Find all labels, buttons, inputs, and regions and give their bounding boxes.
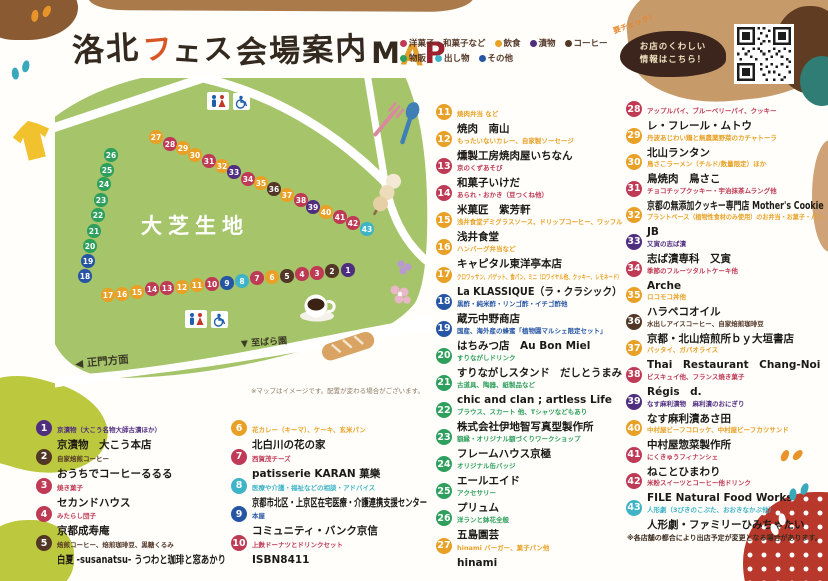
stall-description: hinami バーガー、菓子パン他 bbox=[457, 545, 549, 552]
stall-item-15: 15浅井食堂デミグラスソース、ドリップコーヒー、ワッフル浅井食堂 bbox=[436, 211, 622, 238]
map-marker-10: 10 bbox=[205, 277, 219, 291]
stall-description: あられ・おかき（豆つくね他） bbox=[457, 192, 548, 199]
stall-number-badge: 34 bbox=[626, 261, 642, 277]
qr-code-icon bbox=[734, 24, 794, 84]
festival-map-poster: 洛北 フェス 会場案内 MAP 洋菓子・和菓子など飲食漬物コーヒー物販出し物その… bbox=[0, 0, 828, 581]
map-marker-43: 43 bbox=[360, 222, 374, 236]
stall-description: 焙煎コーヒー、焙煎珈琲豆、黒糖くるみ bbox=[57, 542, 174, 549]
stall-description: プラントベース（植物性食材のみ使用）のお弁当・お菓子・パン bbox=[647, 214, 824, 221]
stall-number-badge: 13 bbox=[436, 158, 452, 174]
stall-number-badge: 17 bbox=[436, 267, 452, 283]
stall-description: 焼き菓子 bbox=[57, 485, 83, 492]
stall-item-11: 11焼肉弁当 など焼肉 南山 bbox=[436, 103, 622, 130]
stall-item-3: 3焼き菓子セカンドハウス bbox=[36, 477, 226, 506]
footprints-top-teal-icon bbox=[11, 59, 32, 82]
legend-label: 洋菓子・和菓子など bbox=[409, 37, 486, 49]
stall-list-col-3: 11焼肉弁当 など焼肉 南山12もったいないカレー、自家製ソーセージ燻製工房焼肉… bbox=[436, 103, 622, 564]
stall-description: 額縁・オリジナル額づくりワークショップ bbox=[457, 436, 581, 443]
promo-line-2: 情報はこちら！ bbox=[640, 54, 707, 67]
map-marker-22: 22 bbox=[91, 208, 105, 222]
map-marker-1: 1 bbox=[341, 263, 355, 277]
stall-number-badge: 3 bbox=[36, 478, 52, 494]
stall-number-badge: 25 bbox=[436, 483, 452, 499]
map-marker-7: 7 bbox=[250, 271, 264, 285]
stall-description: パッタイ、ガパオライス bbox=[647, 347, 718, 354]
stall-number-badge: 10 bbox=[231, 535, 247, 551]
stall-item-22: 22ブラウス、スカート 他、Tシャツなどもあり株式会社伊地智写真型製作所 bbox=[436, 401, 622, 428]
map-marker-31: 31 bbox=[202, 154, 216, 168]
stall-number-badge: 22 bbox=[436, 402, 452, 418]
map-marker-24: 24 bbox=[97, 177, 111, 191]
map-marker-15: 15 bbox=[130, 285, 144, 299]
stall-number-badge: 6 bbox=[231, 420, 247, 436]
legend-dot-icon bbox=[530, 40, 537, 47]
stall-description: すりながしドリンク bbox=[457, 355, 516, 362]
stall-number-badge: 32 bbox=[626, 207, 642, 223]
stall-description: 古道具、陶器、紙製品など bbox=[457, 382, 535, 389]
stall-item-10: 10上麩ドーナツとドリンクセットISBN8411 bbox=[231, 534, 427, 563]
title-jp-3: 会場案内 bbox=[235, 23, 368, 73]
stall-number-badge: 43 bbox=[626, 500, 642, 516]
stall-number-badge: 7 bbox=[231, 449, 247, 465]
map-marker-4: 4 bbox=[295, 267, 309, 281]
stall-number-badge: 30 bbox=[626, 154, 642, 170]
stall-item-2: 2自家焙煎コーヒーおうちでコーヒーるるる bbox=[36, 448, 226, 477]
map-marker-40: 40 bbox=[319, 205, 333, 219]
stall-item-35: 35ロコモコ丼他ハラペコオイル bbox=[626, 286, 824, 313]
map-marker-8: 8 bbox=[235, 274, 249, 288]
stall-number-badge: 18 bbox=[436, 294, 452, 310]
stall-item-29: 29丹波あじわい鶏と無農薬野菜のカチャトーラ北山ランタン bbox=[626, 127, 824, 154]
stall-item-6: 6花カレー（キーマ）、ケーキ、玄米パン北白川の花の家 bbox=[231, 419, 427, 448]
stall-item-27: 27hinami バーガー、菓子パン他hinami bbox=[436, 537, 622, 564]
legend-label: コーヒー bbox=[574, 37, 608, 49]
stall-list-col-1: 1京漬物（大こう名物大師古漬ほか）京漬物 大こう本店2自家焙煎コーヒーおうちでコ… bbox=[36, 419, 226, 563]
stall-item-38: 38ビスキュイ他、フランス焼き菓子Régis d. bbox=[626, 366, 824, 393]
stall-number-badge: 14 bbox=[436, 185, 452, 201]
stall-description: ロコモコ丼他 bbox=[647, 294, 686, 301]
stall-description: 米粉スイーツとコーヒー他ドリンク bbox=[647, 480, 751, 487]
stall-number-badge: 12 bbox=[436, 131, 452, 147]
stall-description: なす麻利漬物 麻利漬のおにぎり bbox=[647, 401, 745, 408]
legend-dot-icon bbox=[400, 55, 407, 62]
legend-dot-icon bbox=[495, 40, 502, 47]
stall-item-1: 1京漬物（大こう名物大師古漬ほか）京漬物 大こう本店 bbox=[36, 419, 226, 448]
legend-item-other: その他 bbox=[479, 52, 514, 64]
legend: 洋菓子・和菓子など飲食漬物コーヒー物販出し物その他 bbox=[400, 37, 620, 67]
stall-number-badge: 4 bbox=[36, 506, 52, 522]
stall-item-37: 37パッタイ、ガパオライスThai Restaurant Chang-Noi bbox=[626, 339, 824, 366]
map-marker-33: 33 bbox=[227, 165, 241, 179]
stall-number-badge: 33 bbox=[626, 234, 642, 250]
map-marker-39: 39 bbox=[306, 200, 320, 214]
stall-number-badge: 42 bbox=[626, 473, 642, 489]
stall-number-badge: 41 bbox=[626, 447, 642, 463]
map-marker-2: 2 bbox=[325, 264, 339, 278]
map-marker-25: 25 bbox=[100, 163, 114, 177]
map-marker-36: 36 bbox=[267, 182, 281, 196]
stall-item-20: 20すりながしドリンクすりながしスタンド だしとうまみ bbox=[436, 347, 622, 374]
stall-number-badge: 20 bbox=[436, 348, 452, 364]
stall-description: 浅井食堂デミグラスソース、ドリップコーヒー、ワッフル bbox=[457, 219, 622, 226]
map-marker-17: 17 bbox=[101, 288, 115, 302]
map-marker-37: 37 bbox=[280, 188, 294, 202]
stall-number-badge: 31 bbox=[626, 181, 642, 197]
stall-description: みたらし団子 bbox=[57, 513, 96, 520]
map-marker-14: 14 bbox=[145, 282, 159, 296]
map-marker-41: 41 bbox=[333, 210, 347, 224]
legend-item-sweets: 洋菓子・和菓子など bbox=[400, 37, 486, 49]
stall-description: チョコチップクッキー・宇治抹茶ムラング他 bbox=[647, 188, 777, 195]
title-jp-1: 洛北 bbox=[71, 22, 141, 71]
map-marker-21: 21 bbox=[87, 224, 101, 238]
venue-map: 大芝生地 ◀ 正門方面 ▼ 至ばら園 ※マップはイメージです。配置が変わる場合が… bbox=[55, 78, 433, 410]
stall-number-badge: 28 bbox=[626, 101, 642, 117]
map-marker-28: 28 bbox=[163, 137, 177, 151]
legend-dot-icon bbox=[435, 55, 442, 62]
stall-description: 国産、海外産の蜂蜜「植物園マルシェ限定セット」 bbox=[457, 328, 607, 335]
stall-number-badge: 36 bbox=[626, 314, 642, 330]
stall-number-badge: 38 bbox=[626, 367, 642, 383]
footer-disclaimer-note: ※各店舗の都合により出店予定が変更となる場合があります。 bbox=[627, 533, 822, 543]
map-marker-26: 26 bbox=[104, 148, 118, 162]
stall-name: ISBN8411 bbox=[252, 555, 309, 566]
title-char: フ bbox=[141, 25, 175, 69]
stall-item-23: 23額縁・オリジナル額づくりワークショップフレームハウス京極 bbox=[436, 428, 622, 455]
stall-item-39: 39なす麻利漬物 麻利漬のおにぎりなす麻利漬あさ田 bbox=[626, 393, 824, 420]
map-marker-16: 16 bbox=[115, 287, 129, 301]
stall-number-badge: 27 bbox=[436, 538, 452, 554]
stall-description: クロワッサン、バゲット、食パン、ミニ（ロワイヤル他、クッキー、レモネード） bbox=[457, 274, 622, 281]
page-title: 洛北 フェス 会場案内 MAP bbox=[72, 24, 447, 70]
stall-number-badge: 9 bbox=[231, 506, 247, 522]
map-markers: 1234567891011121314151617181920212223242… bbox=[55, 78, 433, 410]
stall-item-30: 30鳥さこラーメン（チルド/数量限定）ほか鳥焼肉 鳥さこ bbox=[626, 153, 824, 180]
map-marker-13: 13 bbox=[160, 281, 174, 295]
stall-number-badge: 37 bbox=[626, 340, 642, 356]
title-char: ス bbox=[201, 25, 235, 69]
stall-item-13: 13京のくずあそび和菓子いけだ bbox=[436, 157, 622, 184]
stall-number-badge: 8 bbox=[231, 478, 247, 494]
legend-dot-icon bbox=[565, 40, 572, 47]
stall-description: 上麩ドーナツとドリンクセット bbox=[252, 542, 343, 549]
map-marker-23: 23 bbox=[94, 193, 108, 207]
legend-label: 漬物 bbox=[539, 37, 556, 49]
legend-label: その他 bbox=[488, 52, 514, 64]
stall-item-36: 36水出しアイスコーヒー、自家焙煎珈琲豆京都・北山焙煎所ｂｙ大垣書店 bbox=[626, 313, 824, 340]
stall-number-badge: 40 bbox=[626, 420, 642, 436]
legend-label: 出し物 bbox=[444, 52, 470, 64]
map-marker-12: 12 bbox=[175, 280, 189, 294]
stall-number-badge: 24 bbox=[436, 456, 452, 472]
stall-number-badge: 23 bbox=[436, 429, 452, 445]
title-char: M bbox=[371, 36, 401, 70]
tshirt-icon bbox=[8, 115, 60, 164]
stall-item-5: 5焙煎コーヒー、焙煎珈琲豆、黒糖くるみ白夏 -susanatsu- うつわと珈琲… bbox=[36, 534, 226, 563]
stall-item-25: 25アクセサリープリュム bbox=[436, 482, 622, 509]
stall-name: La KLASSIQUE（ラ・クラシック） bbox=[457, 287, 622, 298]
stall-number-badge: 11 bbox=[436, 104, 452, 120]
stall-item-40: 40中村屋ビーフコロッケ、中村屋ビーフカツサンド中村屋惣菜製作所 bbox=[626, 419, 824, 446]
stall-name: 白夏 -susanatsu- うつわと珈琲と窓あかり bbox=[57, 555, 226, 566]
stall-number-badge: 26 bbox=[436, 510, 452, 526]
stall-number-badge: 39 bbox=[626, 394, 642, 410]
legend-dot-icon bbox=[400, 40, 407, 47]
stall-number-badge: 2 bbox=[36, 449, 52, 465]
promo-line-1: お店のくわしい bbox=[640, 41, 707, 54]
stall-description: 自家焙煎コーヒー bbox=[57, 456, 109, 463]
stall-item-7: 7西賀茂チーズpatisserie KARAN 菓樂 bbox=[231, 448, 427, 477]
stall-description: アクセサリー bbox=[457, 490, 496, 497]
stall-description: 又寅の志ば漬 bbox=[647, 241, 686, 248]
stall-number-badge: 16 bbox=[436, 239, 452, 255]
stall-name: すりながしスタンド だしとうまみ bbox=[457, 368, 622, 379]
stall-item-26: 26洋ランと鉢花全般五島園芸 bbox=[436, 509, 622, 536]
map-marker-3: 3 bbox=[310, 266, 324, 280]
title-jp-2: フェス bbox=[143, 28, 233, 70]
stall-description: 丹波あじわい鶏と無農薬野菜のカチャトーラ bbox=[647, 135, 777, 142]
stall-description: ビスキュイ他、フランス焼き菓子 bbox=[647, 374, 744, 381]
map-marker-6: 6 bbox=[265, 270, 279, 284]
legend-label: 飲食 bbox=[504, 37, 521, 49]
stall-description: 鳥さこラーメン（チルド/数量限定）ほか bbox=[647, 161, 766, 168]
stall-name: hinami bbox=[457, 558, 497, 569]
stall-item-16: 16ハンバーグ弁当などキャピタル東洋亭本店 bbox=[436, 238, 622, 265]
stall-description: 焼肉弁当 など bbox=[457, 111, 498, 118]
map-marker-34: 34 bbox=[241, 172, 255, 186]
legend-item-goods: 物販 bbox=[400, 52, 426, 64]
stall-description: オリジナル缶バッジ bbox=[457, 463, 516, 470]
stall-item-19: 19国産、海外産の蜂蜜「植物園マルシェ限定セット」はちみつ店 Au Bon Mi… bbox=[436, 320, 622, 347]
stall-item-17: 17クロワッサン、バゲット、食パン、ミニ（ロワイヤル他、クッキー、レモネード）L… bbox=[436, 266, 622, 293]
stall-description: 京のくずあそび bbox=[457, 165, 503, 172]
stall-description: 洋ランと鉢花全般 bbox=[457, 517, 509, 524]
stall-item-4: 4みたらし団子京都成寿庵 bbox=[36, 505, 226, 534]
stall-item-34: 34季節のフルーツタルトケーキ他Arche bbox=[626, 260, 824, 287]
stall-item-12: 12もったいないカレー、自家製ソーセージ燻製工房焼肉屋いちなん bbox=[436, 130, 622, 157]
legend-dot-icon bbox=[479, 55, 486, 62]
stall-item-33: 33又寅の志ば漬志ば漬専科 又寅 bbox=[626, 233, 824, 260]
stall-description: 人形劇（3びきのこぶた、おおきなかぶ他） bbox=[647, 507, 775, 514]
map-marker-5: 5 bbox=[280, 269, 294, 283]
map-marker-27: 27 bbox=[149, 130, 163, 144]
stall-description: 京漬物（大こう名物大師古漬ほか） bbox=[57, 427, 161, 434]
legend-label: 物販 bbox=[409, 52, 426, 64]
stall-description: 黒酢・純米酢・リンゴ酢・イチゴ酢他 bbox=[457, 301, 568, 308]
legend-item-pickles: 漬物 bbox=[530, 37, 556, 49]
title-char: ェ bbox=[172, 27, 205, 71]
legend-item-show: 出し物 bbox=[435, 52, 470, 64]
stall-list-col-2: 6花カレー（キーマ）、ケーキ、玄米パン北白川の花の家7西賀茂チーズpatisse… bbox=[231, 419, 427, 563]
map-marker-18: 18 bbox=[78, 269, 92, 283]
stall-item-9: 9本屋コミュニティ・バンク京信 bbox=[231, 505, 427, 534]
stall-name: 京都の無添加クッキー専門店 Mother's Cookie bbox=[647, 201, 824, 212]
stall-description: 花カレー（キーマ）、ケーキ、玄米パン bbox=[252, 427, 366, 434]
stall-description: 季節のフルーツタルトケーキ他 bbox=[647, 268, 738, 275]
stall-item-24: 24オリジナル缶バッジエールエイド bbox=[436, 455, 622, 482]
stall-number-badge: 1 bbox=[36, 420, 52, 436]
map-marker-19: 19 bbox=[81, 254, 95, 268]
stall-description: 医療や介護・福祉などの相談・アドバイス bbox=[252, 485, 375, 492]
stall-number-badge: 15 bbox=[436, 212, 452, 228]
stall-number-badge: 35 bbox=[626, 287, 642, 303]
promo-speech-bubble: お店のくわしい 情報はこちら！ bbox=[620, 31, 726, 77]
legend-item-coffee: コーヒー bbox=[565, 37, 608, 49]
stall-description: ハンバーグ弁当など bbox=[457, 246, 516, 253]
stall-number-badge: 5 bbox=[36, 535, 52, 551]
map-marker-11: 11 bbox=[190, 278, 204, 292]
stall-item-14: 14あられ・おかき（豆つくね他）米菓匠 紫芳軒 bbox=[436, 184, 622, 211]
stall-name: 京都市北区・上京区在宅医療・介護連携支援センター bbox=[252, 498, 427, 509]
map-marker-30: 30 bbox=[188, 148, 202, 162]
stall-description: 中村屋ビーフコロッケ、中村屋ビーフカツサンド bbox=[647, 427, 789, 434]
map-marker-35: 35 bbox=[254, 176, 268, 190]
stall-item-28: 28アップルパイ、ブルーベリーパイ、クッキーレ・フレール・ムトウ bbox=[626, 100, 824, 127]
stall-description: 本屋 bbox=[252, 513, 265, 520]
map-marker-9: 9 bbox=[220, 276, 234, 290]
stall-description: もったいないカレー、自家製ソーセージ bbox=[457, 138, 574, 145]
stall-description: 水出しアイスコーヒー、自家焙煎珈琲豆 bbox=[647, 321, 764, 328]
top-band bbox=[88, 0, 474, 12]
stall-description: アップルパイ、ブルーベリーパイ、クッキー bbox=[647, 108, 777, 115]
stall-number-badge: 19 bbox=[436, 321, 452, 337]
stall-number-badge: 29 bbox=[626, 128, 642, 144]
stall-description: ブラウス、スカート 他、Tシャツなどもあり bbox=[457, 409, 587, 416]
map-marker-42: 42 bbox=[346, 216, 360, 230]
stall-item-31: 31チョコチップクッキー・宇治抹茶ムラング他京都の無添加クッキー専門店 Moth… bbox=[626, 180, 824, 207]
legend-item-food: 飲食 bbox=[495, 37, 521, 49]
stall-item-8: 8医療や介護・福祉などの相談・アドバイス京都市北区・上京区在宅医療・介護連携支援… bbox=[231, 477, 427, 506]
stall-number-badge: 21 bbox=[436, 375, 452, 391]
stall-description: 西賀茂チーズ bbox=[252, 456, 291, 463]
stall-description: にくきゅうフィナンシェ bbox=[647, 454, 718, 461]
map-marker-20: 20 bbox=[83, 239, 97, 253]
